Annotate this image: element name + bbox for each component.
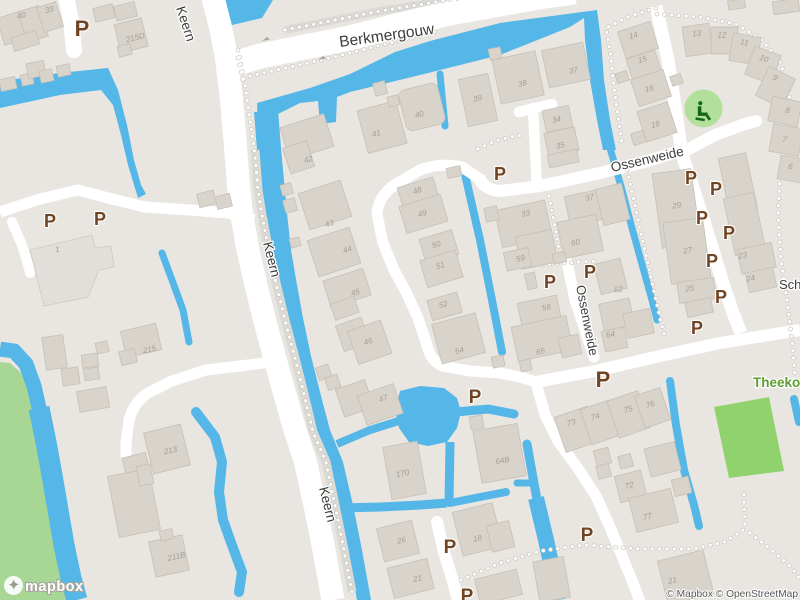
svg-text:P: P [715, 287, 727, 307]
svg-text:P: P [44, 211, 56, 231]
svg-text:P: P [75, 16, 90, 41]
svg-text:27: 27 [682, 245, 694, 255]
svg-text:P: P [691, 318, 703, 338]
svg-text:P: P [710, 179, 722, 199]
svg-text:13: 13 [692, 28, 703, 38]
svg-text:P: P [584, 262, 596, 282]
svg-text:P: P [469, 387, 482, 408]
svg-text:12: 12 [718, 31, 727, 40]
svg-text:© Mapbox © OpenStreetMap: © Mapbox © OpenStreetMap [666, 589, 798, 600]
svg-text:P: P [94, 209, 106, 229]
svg-text:Schoutenbosch: Schoutenbosch [779, 277, 800, 292]
svg-text:P: P [685, 168, 697, 188]
svg-text:P: P [544, 272, 556, 292]
svg-text:P: P [581, 525, 594, 546]
svg-text:25: 25 [684, 283, 696, 293]
svg-text:11: 11 [740, 37, 750, 47]
svg-text:P: P [461, 586, 474, 600]
svg-text:29: 29 [671, 200, 683, 210]
svg-text:P: P [723, 223, 735, 243]
svg-text:Theekoepel: Theekoepel [753, 375, 800, 390]
svg-text:P: P [696, 208, 708, 228]
svg-text:P: P [444, 537, 457, 558]
svg-text:P: P [494, 164, 506, 184]
svg-text:P: P [596, 367, 611, 392]
svg-text:P: P [706, 251, 718, 271]
svg-text:mapbox: mapbox [25, 579, 84, 595]
